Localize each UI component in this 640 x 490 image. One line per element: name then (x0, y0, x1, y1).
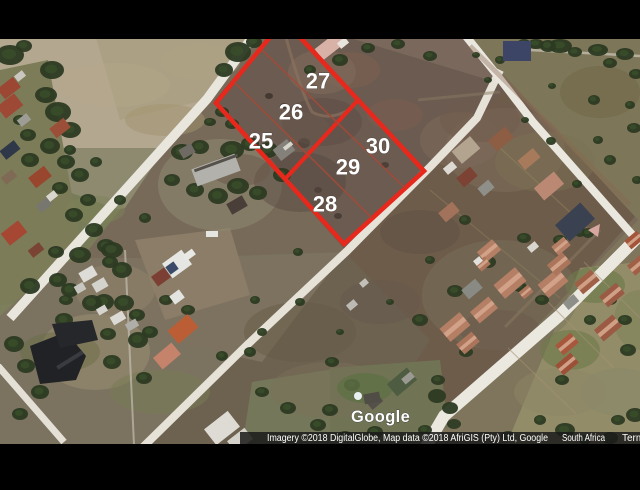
svg-text:Google: Google (351, 408, 410, 426)
svg-text:South Africa: South Africa (562, 433, 605, 444)
svg-text:28: 28 (313, 192, 337, 217)
svg-text:30: 30 (366, 134, 390, 159)
svg-text:29: 29 (336, 155, 360, 180)
svg-text:Imagery ©2018 DigitalGlobe, Ma: Imagery ©2018 DigitalGlobe, Map data ©20… (267, 433, 548, 444)
svg-text:Terms: Terms (622, 433, 640, 444)
svg-text:26: 26 (279, 100, 303, 125)
svg-text:25: 25 (249, 129, 273, 154)
svg-text:27: 27 (306, 69, 330, 94)
